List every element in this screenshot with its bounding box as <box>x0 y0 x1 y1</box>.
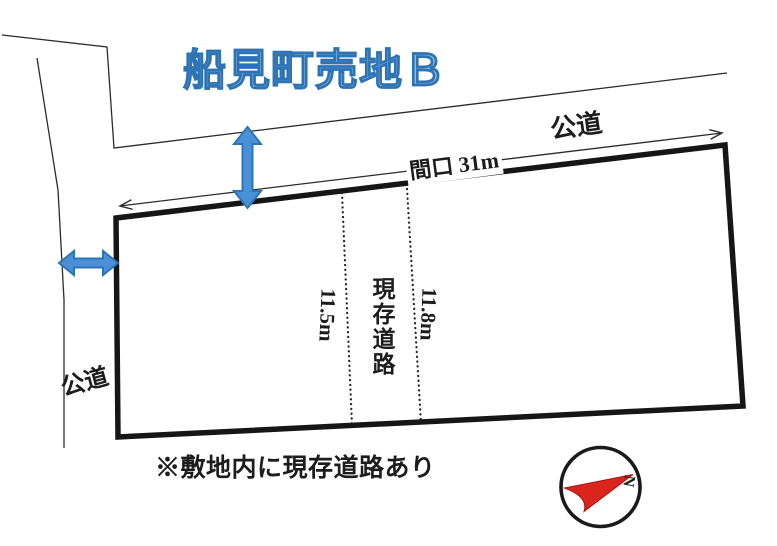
top-road-label: 公道 <box>548 103 605 147</box>
road-access-arrow-vertical-icon <box>234 127 261 208</box>
page-title: 船見町売地Ｂ <box>183 36 447 98</box>
existing-road-label: 現存道路 <box>364 277 398 377</box>
left-road-boundary-line <box>37 58 64 448</box>
site-note: ※敷地内に現存道路あり <box>155 448 436 484</box>
compass-north-label: N <box>618 474 638 489</box>
existing-road-width-left-label: 11.5m <box>313 288 340 342</box>
road-access-arrow-horizontal-icon <box>59 251 118 275</box>
existing-road-width-right-label: 11.8m <box>414 287 441 341</box>
land-plot-diagram: 船見町売地Ｂ 公道 間口 31m 公道 11.5m 現存道路 11.8m ※敷地… <box>0 0 777 546</box>
